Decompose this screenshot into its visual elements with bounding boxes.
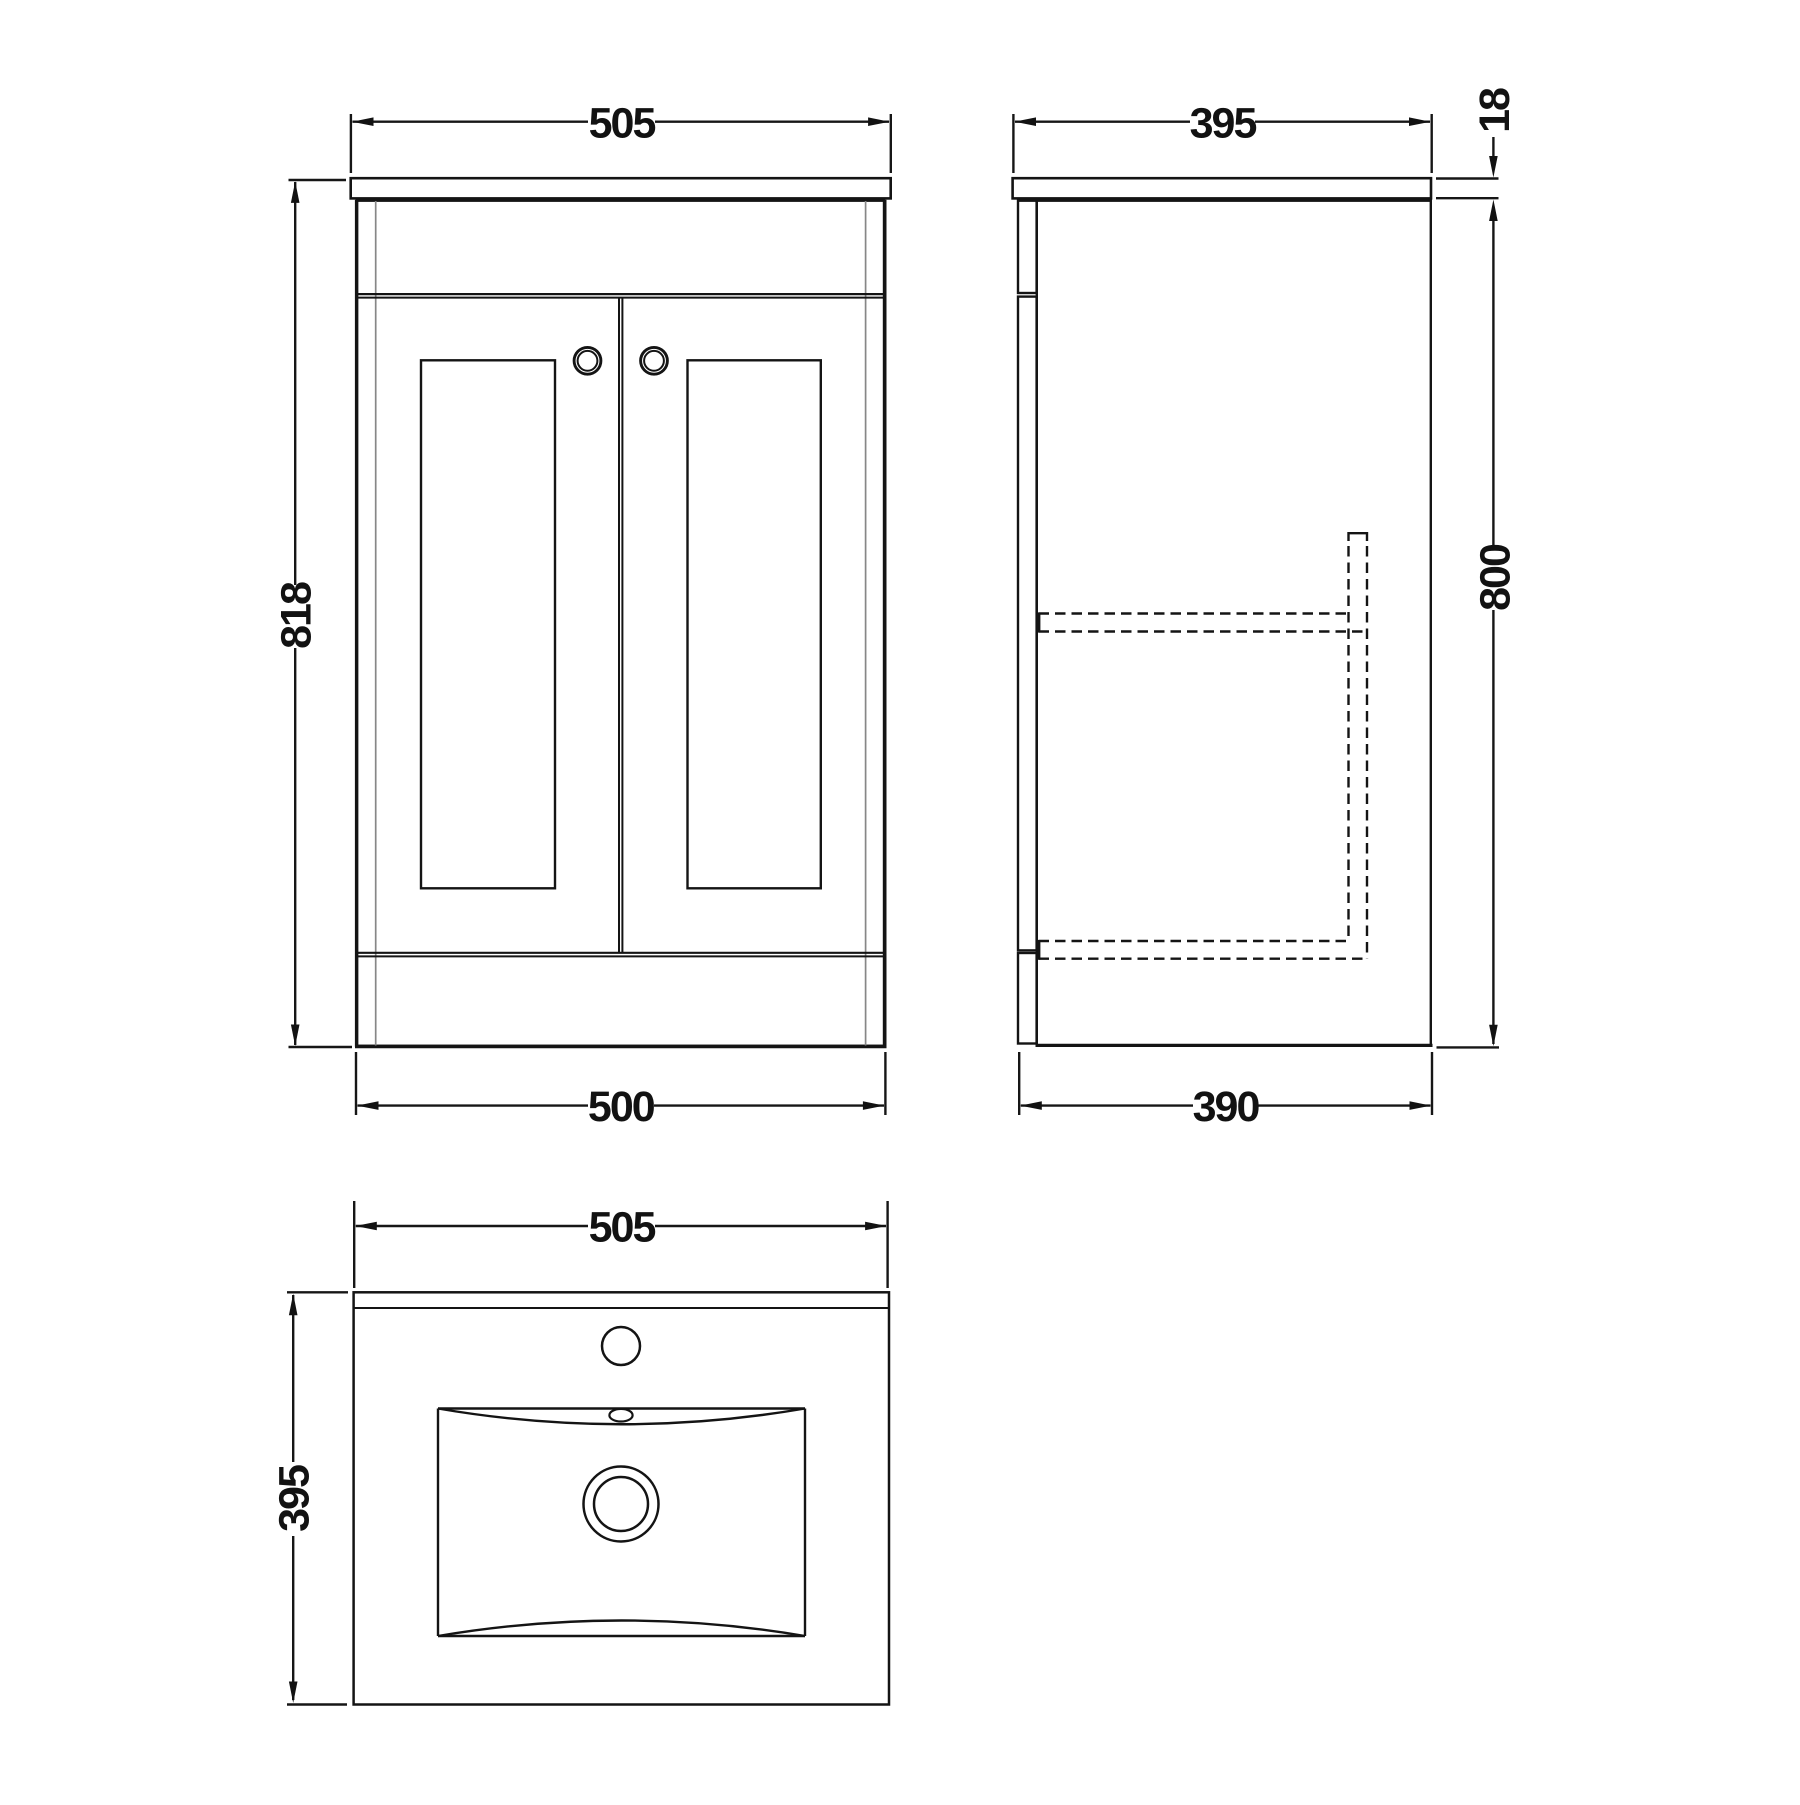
svg-text:500: 500 — [588, 1083, 655, 1131]
svg-text:505: 505 — [589, 1204, 656, 1252]
svg-text:18: 18 — [1471, 88, 1519, 133]
svg-text:395: 395 — [1190, 99, 1257, 147]
svg-text:818: 818 — [273, 582, 321, 649]
svg-text:800: 800 — [1472, 544, 1520, 611]
svg-text:505: 505 — [589, 99, 656, 147]
svg-text:390: 390 — [1193, 1083, 1260, 1131]
svg-text:395: 395 — [271, 1465, 319, 1532]
